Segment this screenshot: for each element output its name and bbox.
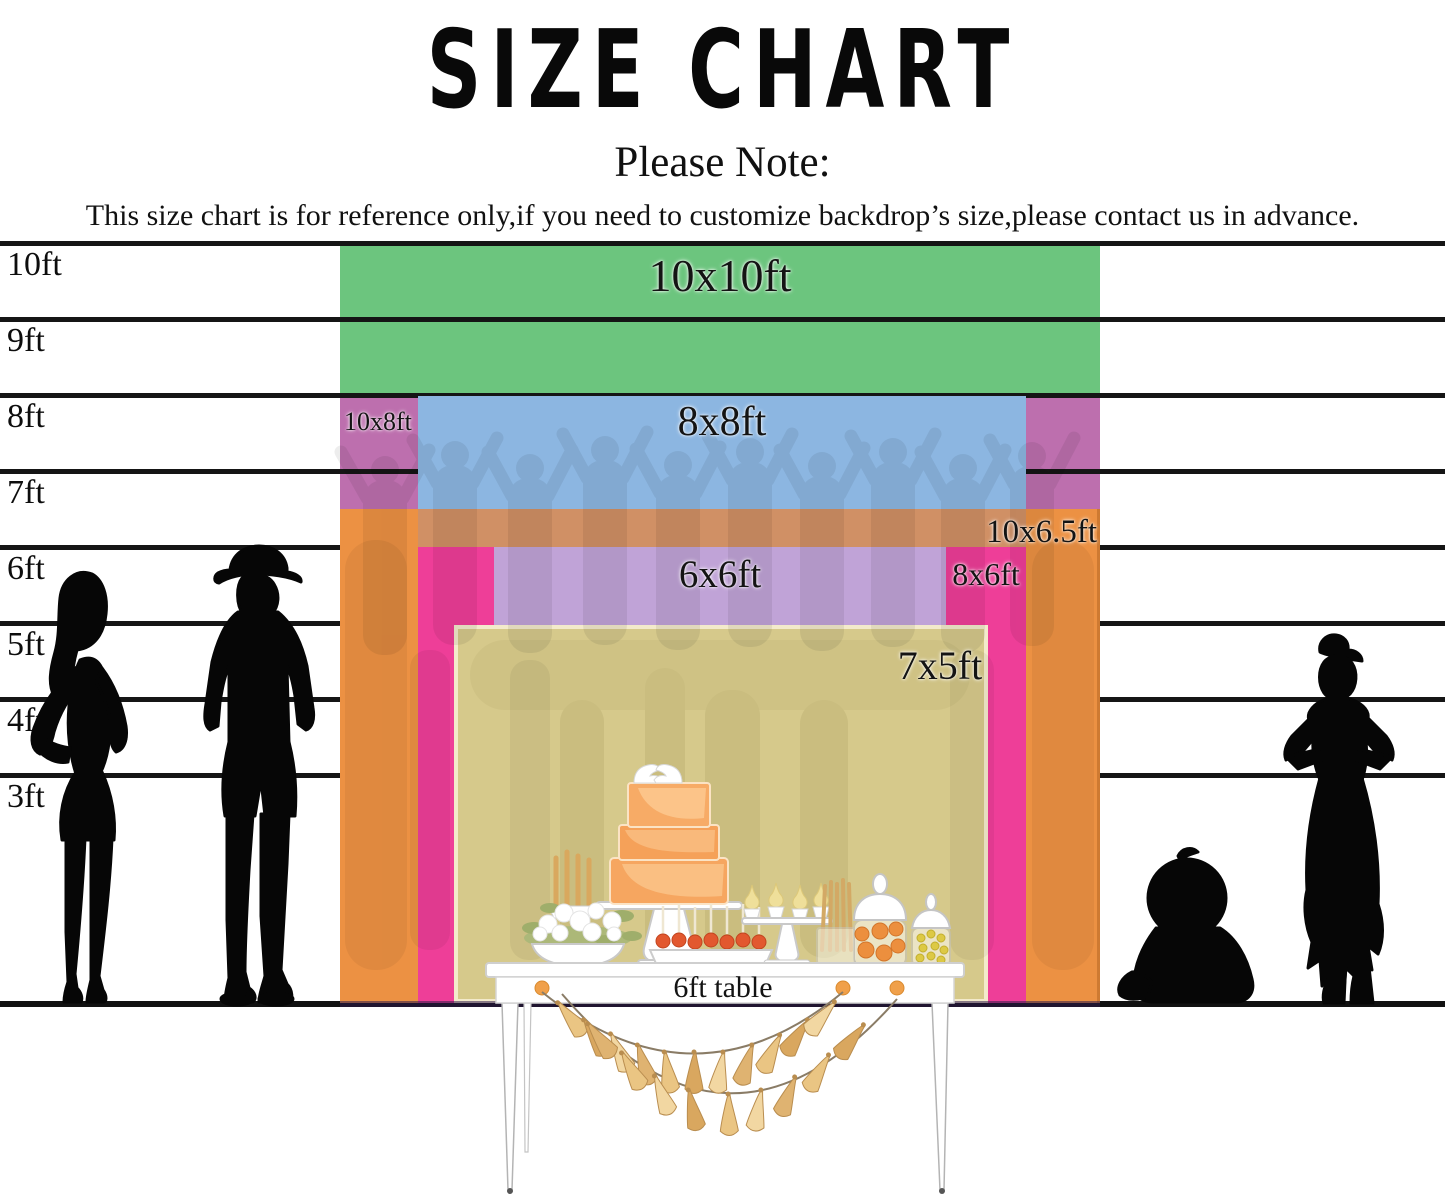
size-label-8x8: 8x8ft — [418, 400, 1026, 444]
size-label-10x6-5: 10x6.5ft — [975, 515, 1097, 550]
table-label: 6ft table — [490, 971, 956, 1005]
ruler-line-9ft — [0, 317, 1445, 322]
tassels — [549, 994, 872, 1136]
ruler-label-5ft: 5ft — [7, 628, 45, 662]
ruler-label-3ft: 3ft — [7, 780, 45, 814]
size-label-8x6: 8x6ft — [944, 558, 1028, 592]
size-chart-infographic: SIZE CHART Please Note: This size chart … — [0, 0, 1445, 1202]
size-label-10x8: 10x8ft — [344, 408, 412, 435]
silhouette-toddler — [1119, 849, 1253, 1002]
ruler-label-7ft: 7ft — [7, 476, 45, 510]
size-label-6x6: 6x6ft — [494, 555, 946, 596]
ruler-label-4ft: 4ft — [7, 704, 45, 738]
ruler-label-8ft: 8ft — [7, 400, 45, 434]
ruler-label-9ft: 9ft — [7, 324, 45, 358]
ruler-label-6ft: 6ft — [7, 552, 45, 586]
page-title: SIZE CHART — [0, 6, 1445, 95]
note-heading: Please Note: — [0, 138, 1445, 187]
ruler-label-10ft: 10ft — [7, 248, 62, 282]
ruler-line-10ft — [0, 241, 1445, 246]
size-label-7x5: 7x5ft — [890, 645, 990, 687]
silhouette-girl — [1285, 635, 1393, 1003]
page-title-text: SIZE CHART — [427, 6, 1019, 132]
size-label-10x10: 10x10ft — [340, 252, 1100, 300]
disclaimer-text: This size chart is for reference only,if… — [0, 199, 1445, 233]
table-leg-left — [502, 1003, 518, 1190]
silhouette-woman — [32, 572, 127, 1002]
overlap-tint-band — [418, 509, 1026, 547]
table-leg-right — [932, 1003, 948, 1190]
